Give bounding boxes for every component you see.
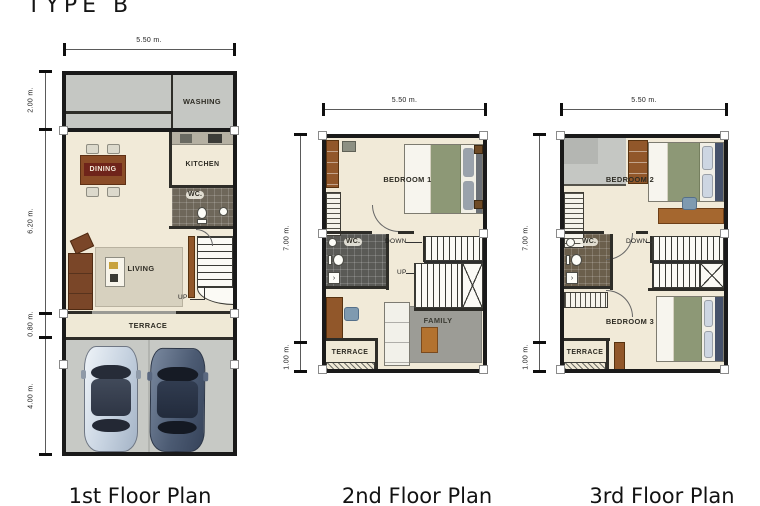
car-rear-window — [92, 419, 130, 432]
wardrobe — [326, 140, 339, 188]
wall — [724, 134, 728, 373]
stair-rail — [188, 236, 195, 298]
wall — [423, 236, 425, 262]
dimension-line — [539, 134, 540, 373]
room-label-terrace: TERRACE — [324, 349, 376, 357]
chair-icon — [86, 144, 99, 154]
shower-icon: › — [328, 272, 340, 284]
column-marker — [479, 365, 488, 374]
wall — [62, 337, 237, 340]
floorplan-sheet: TYPE B 5.50 m. 2.00 m. 6.20 m. 0.80 m. 4… — [0, 0, 760, 506]
dimension-label: 4.00 m. — [28, 383, 35, 408]
dresser — [342, 141, 356, 152]
wall — [62, 71, 237, 75]
stair-landing — [700, 263, 724, 288]
dimension-tick — [39, 128, 52, 131]
dimension-tick — [484, 103, 487, 116]
dimension-tick — [533, 370, 546, 373]
pillow-icon — [704, 331, 714, 358]
stair-divider — [652, 261, 724, 263]
column-marker — [59, 309, 68, 318]
dimension-label: 0.80 m. — [28, 311, 35, 336]
bed-pillows — [702, 297, 716, 361]
column-marker — [230, 360, 239, 369]
dimension-label: 5.50 m. — [561, 97, 727, 104]
room-label-terrace: TERRACE — [559, 349, 611, 357]
nightstand — [474, 145, 483, 154]
dimension-tick — [294, 341, 307, 344]
room-label-living: LIVING — [116, 265, 166, 273]
car-mirror — [81, 370, 86, 379]
shelf — [564, 292, 608, 308]
dimension-line — [323, 109, 486, 110]
column-marker — [479, 229, 488, 238]
car-roof — [157, 381, 198, 418]
wall — [414, 308, 487, 311]
bed-pillows — [700, 143, 716, 201]
wall — [560, 231, 604, 234]
desk — [326, 297, 343, 339]
closet — [614, 342, 625, 371]
bed-headboard — [715, 297, 723, 361]
chair-icon — [86, 187, 99, 197]
wall — [66, 111, 171, 114]
car-windshield — [91, 365, 131, 380]
bed-sheet — [649, 143, 668, 201]
shelf — [326, 192, 341, 236]
page-title: TYPE B — [27, 0, 133, 18]
column-marker — [59, 360, 68, 369]
dimension-tick — [39, 453, 52, 456]
room-label-bedroom3: BEDROOM 3 — [582, 318, 678, 326]
wall — [322, 231, 372, 234]
dimension-tick — [39, 336, 52, 339]
room-label-bedroom2: BEDROOM 2 — [582, 176, 678, 184]
toilet-icon — [333, 254, 344, 266]
room-label-dining: DINING — [80, 166, 126, 174]
wall — [560, 369, 728, 373]
wall — [636, 231, 648, 234]
room-label-wc: WC. — [186, 191, 204, 199]
wall — [564, 184, 626, 186]
car-mirror — [203, 372, 208, 381]
column-marker — [479, 131, 488, 140]
column-marker — [720, 131, 729, 140]
dimension-tick — [233, 43, 236, 56]
dimension-tick — [533, 133, 546, 136]
dimension-label: 2.00 m. — [28, 87, 35, 112]
dimension-line — [64, 49, 234, 50]
wall — [560, 134, 564, 373]
dimension-label: 7.00 m. — [523, 225, 530, 250]
toilet-icon — [571, 254, 582, 266]
wall — [62, 128, 237, 132]
sink-icon — [328, 238, 337, 247]
wall — [169, 185, 233, 188]
dimension-label: 1.00 m. — [284, 344, 291, 369]
sofa-icon — [68, 253, 93, 310]
bed-blanket — [674, 297, 702, 361]
caption-floor3: 3rd Floor Plan — [567, 484, 757, 506]
stair-label-down: DOWN — [385, 239, 407, 246]
column-marker — [59, 126, 68, 135]
wall — [169, 226, 233, 229]
stairs-up-flight — [414, 263, 462, 308]
bed-icon — [648, 142, 724, 202]
column-marker — [230, 309, 239, 318]
desk-chair — [344, 307, 359, 321]
bed-icon — [656, 296, 724, 362]
wall — [648, 288, 727, 291]
stair-landing — [462, 263, 483, 308]
column-marker — [556, 365, 565, 374]
nightstand — [474, 200, 483, 209]
wall — [326, 286, 389, 289]
sink-icon — [219, 207, 228, 216]
pillow-icon — [704, 300, 714, 327]
toilet-icon — [328, 255, 332, 265]
dimension-label: 7.00 m. — [284, 225, 291, 250]
column-marker — [720, 229, 729, 238]
car-mirror — [147, 372, 152, 381]
wall — [483, 134, 487, 373]
stairs-down-flight — [424, 236, 483, 261]
shower-icon: › — [566, 272, 578, 284]
stairs-down-flight — [652, 236, 724, 261]
car-mirror — [136, 370, 141, 379]
column-marker — [318, 131, 327, 140]
car-dark-icon — [149, 348, 205, 453]
caption-floor2: 2nd Floor Plan — [322, 484, 512, 506]
stair-divider — [424, 261, 483, 263]
chair-icon — [107, 187, 120, 197]
wall — [564, 286, 613, 289]
wall — [62, 452, 237, 456]
car-light-icon — [84, 346, 138, 452]
dimension-tick — [322, 103, 325, 116]
dimension-line — [300, 134, 301, 373]
column-marker — [318, 365, 327, 374]
room-label-wc: WC. — [344, 238, 362, 246]
dimension-tick — [725, 103, 728, 116]
wall — [322, 338, 378, 341]
stair-label-up: UP — [178, 295, 188, 302]
wall — [610, 234, 613, 290]
sliding-door — [92, 311, 176, 314]
rug — [398, 306, 482, 363]
bed-headboard — [715, 143, 723, 201]
column-marker — [318, 229, 327, 238]
wall — [322, 369, 487, 373]
column-marker — [230, 126, 239, 135]
dimension-tick — [533, 341, 546, 344]
dimension-tick — [63, 43, 66, 56]
wall — [322, 134, 326, 373]
room-label-bedroom1: BEDROOM 1 — [360, 176, 455, 184]
room-label-family: FAMILY — [408, 317, 468, 325]
desk — [658, 208, 724, 224]
stair-arrow — [190, 299, 204, 300]
stair-arrow — [204, 286, 205, 300]
toilet-icon — [566, 255, 570, 265]
bed-blanket — [668, 143, 700, 201]
dimension-label: 5.50 m. — [64, 37, 234, 44]
sofa-icon — [384, 302, 410, 366]
caption-floor1: 1st Floor Plan — [45, 484, 235, 506]
decor-icon — [110, 274, 118, 282]
dimension-label: 6.20 m. — [28, 208, 35, 233]
stairs-lower-flight — [652, 263, 700, 288]
car-rear-window — [158, 421, 197, 434]
bed-sheet — [657, 297, 674, 361]
wall — [560, 134, 728, 138]
column-marker — [720, 365, 729, 374]
room-label-wc: WC. — [580, 238, 598, 246]
toilet-icon — [197, 207, 207, 219]
stove-icon — [180, 134, 192, 143]
dimension-label: 1.00 m. — [523, 344, 530, 369]
toilet-icon — [197, 219, 207, 224]
sink-icon — [566, 238, 575, 247]
dimension-tick — [560, 103, 563, 116]
stair-label-down: DOWN — [626, 239, 648, 246]
chair-icon — [107, 144, 120, 154]
car-roof — [91, 379, 131, 416]
dimension-line — [561, 109, 727, 110]
sink-icon — [208, 134, 222, 143]
wall — [169, 132, 172, 187]
dimension-tick — [39, 312, 52, 315]
room-label-washing: WASHING — [171, 98, 233, 106]
pillow-icon — [702, 174, 714, 198]
dimension-tick — [39, 70, 52, 73]
coffee-table — [421, 327, 438, 353]
dimension-label: 5.50 m. — [323, 97, 486, 104]
stair-arrow — [406, 242, 422, 243]
wall — [398, 231, 414, 234]
room-label-kitchen: KITCHEN — [172, 161, 233, 169]
wall — [560, 338, 610, 341]
pillow-icon — [463, 148, 474, 177]
wall — [322, 134, 487, 138]
pillow-icon — [702, 146, 714, 170]
stair-label-up: UP — [397, 270, 407, 277]
pillow-icon — [463, 181, 474, 210]
room-label-terrace: TERRACE — [98, 322, 198, 330]
column-marker — [556, 229, 565, 238]
dimension-tick — [294, 133, 307, 136]
stair-arrow — [406, 273, 414, 274]
column-marker — [556, 131, 565, 140]
desk-chair — [682, 197, 697, 210]
service-area-floor — [564, 138, 598, 164]
wall — [650, 236, 652, 263]
dimension-tick — [294, 370, 307, 373]
